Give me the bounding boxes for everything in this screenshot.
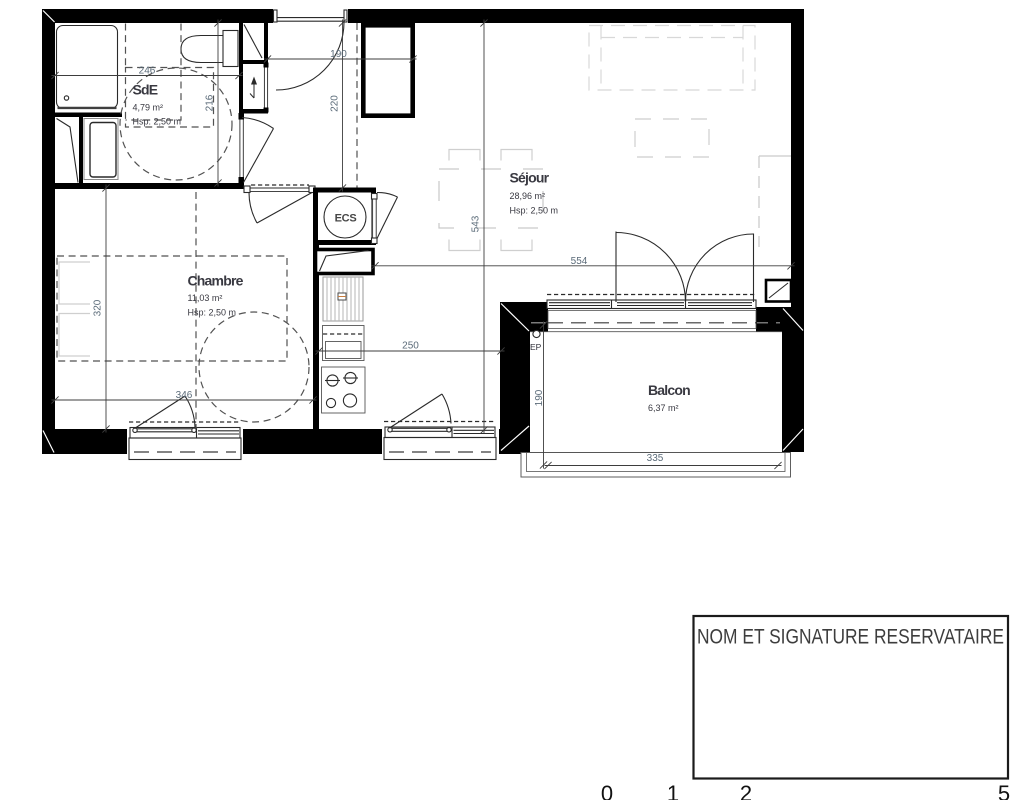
svg-text:246: 246 (139, 66, 156, 77)
svg-text:216: 216 (205, 94, 216, 111)
svg-text:ECS: ECS (335, 213, 357, 225)
svg-text:190: 190 (330, 49, 347, 60)
svg-text:320: 320 (93, 299, 104, 316)
svg-text:190: 190 (534, 389, 545, 406)
svg-text:EP: EP (530, 342, 542, 352)
svg-text:554: 554 (571, 256, 588, 267)
svg-text:220: 220 (330, 95, 341, 112)
svg-text:Hsp: 2,50 m: Hsp: 2,50 m (188, 308, 237, 318)
svg-text:SdE: SdE (133, 82, 158, 98)
svg-text:346: 346 (176, 390, 193, 401)
svg-text:1: 1 (667, 781, 679, 800)
svg-text:543: 543 (471, 215, 482, 232)
svg-text:Hsp: 2,50 m: Hsp: 2,50 m (510, 206, 559, 216)
svg-text:0: 0 (601, 781, 613, 800)
svg-text:250: 250 (402, 341, 419, 352)
svg-text:Séjour: Séjour (510, 170, 550, 186)
svg-text:4,79 m²: 4,79 m² (133, 103, 164, 113)
svg-text:Balcon: Balcon (648, 382, 690, 398)
svg-text:335: 335 (647, 453, 664, 464)
svg-text:Hsp: 2,50 m: Hsp: 2,50 m (133, 117, 182, 127)
svg-text:2: 2 (740, 781, 752, 800)
svg-text:28,96 m²: 28,96 m² (510, 191, 546, 201)
svg-text:NOM ET SIGNATURE RESERVATAIRE: NOM ET SIGNATURE RESERVATAIRE (697, 626, 1004, 649)
svg-text:6,37 m²: 6,37 m² (648, 403, 679, 413)
svg-text:5: 5 (998, 781, 1010, 800)
svg-text:11,03 m²: 11,03 m² (188, 293, 223, 303)
svg-text:Chambre: Chambre (188, 273, 244, 289)
